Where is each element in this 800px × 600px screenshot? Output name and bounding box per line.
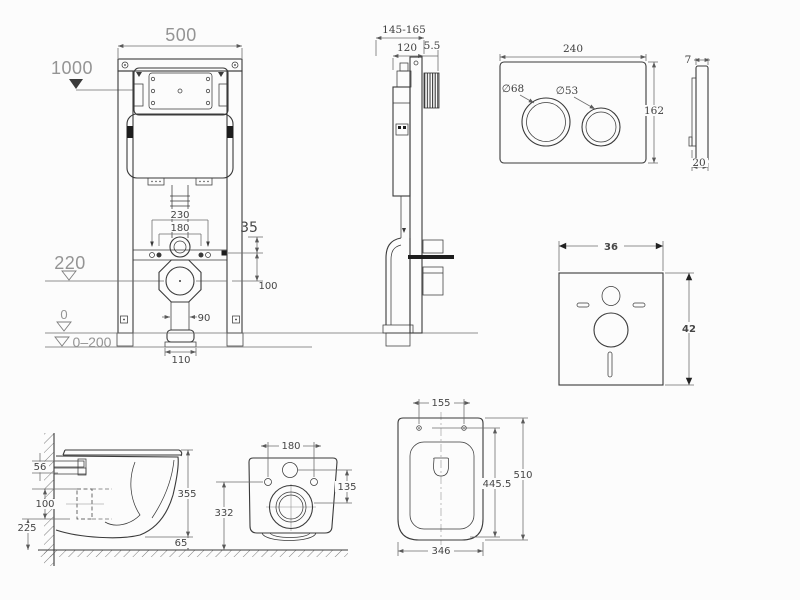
valve-cap [400, 63, 408, 71]
mount-hole [311, 479, 318, 486]
width-label: 346 [431, 546, 450, 557]
cistern-bottom-tabs [148, 178, 212, 185]
flush-plate [500, 62, 646, 163]
fixing-bolt [157, 253, 162, 258]
bolt-span-dim: 180 [159, 222, 201, 246]
pad-vertical-slot [608, 352, 612, 377]
bolt-span-label: 180 [170, 223, 189, 234]
flush-connector [54, 461, 84, 467]
level-marker-filled [69, 79, 83, 89]
foot-extension [386, 333, 410, 346]
outlet-flange [165, 342, 196, 347]
pipe-width-label: 90 [198, 313, 211, 324]
installation-frame-front-view: 500 1000 [45, 25, 478, 366]
toilet-rear-view: 180 135 332 [211, 440, 359, 550]
small-flush-button [582, 108, 620, 146]
cistern-side-clip [127, 126, 133, 138]
window-side-tab [134, 84, 143, 106]
trap-curve [105, 462, 140, 525]
sound-insulation-pad-view: 36 42 [559, 240, 698, 385]
cistern-fitting [396, 124, 408, 135]
leader-line [574, 97, 595, 109]
frame-right-foot [227, 333, 243, 346]
bolt-span-label: 155 [431, 398, 450, 409]
weld-nut [222, 251, 227, 256]
wall-section-hatch [424, 73, 439, 108]
technical-drawing-canvas: 500 1000 [0, 0, 800, 600]
wall-ref-height-label: 1000 [51, 58, 93, 78]
level-marker-open [55, 337, 69, 346]
concealed-cistern [127, 68, 233, 185]
frame-structure [117, 59, 243, 346]
offset-dims: 35 100 [228, 220, 278, 292]
support-bracket [408, 255, 454, 259]
big-button-dia-label: ∅68 [502, 83, 525, 95]
bolt-hole [206, 253, 211, 258]
screw-dot [124, 64, 126, 66]
pad-inlet-cutout [602, 287, 620, 306]
outlet-width-label: 110 [171, 355, 190, 366]
inner-depth-label: 445.5 [483, 479, 512, 490]
pad-height-label: 42 [682, 324, 696, 335]
frame-width-dim-label: 500 [165, 25, 197, 45]
drain-connector-stub [423, 267, 443, 295]
toilet-side-view: 56 100 225 355 65 [15, 450, 199, 550]
frame-left-foot [117, 333, 133, 346]
frame-left-rail [118, 71, 133, 333]
plate-height-label: 162 [644, 105, 664, 117]
center-dot [179, 280, 181, 282]
access-window-panel [149, 73, 212, 109]
toilet-top-view: 155 445.5 510 346 [398, 397, 536, 557]
flush-connector-stub [423, 240, 443, 253]
drain-opening [266, 484, 316, 531]
panel-screws [151, 77, 209, 104]
cistern-side-clip [227, 126, 233, 138]
toilet-side-body [54, 450, 182, 538]
plate-thickness-label: 7 [685, 54, 692, 66]
fill-valve [397, 71, 411, 87]
fixing-gap-label: 56 [34, 462, 47, 473]
drain-elbow-outer [386, 238, 401, 325]
adjust-mark [136, 72, 142, 77]
bowl-bottom-arc [262, 533, 316, 541]
panel-center-hole [178, 89, 182, 93]
floor-zero-label: 0 [60, 307, 67, 322]
pipe-bend-inner [174, 241, 186, 253]
plate-width-label: 240 [563, 43, 583, 55]
pipe-bend [170, 237, 190, 257]
flow-arrow [402, 228, 406, 233]
toilet-top-dims: 155 445.5 510 346 [398, 397, 536, 557]
adjust-mark [218, 72, 224, 77]
seat-edge [63, 450, 182, 456]
drain-connector [54, 468, 86, 474]
fixing-bolt [199, 253, 204, 258]
inlet-to-drain-label: 135 [337, 482, 356, 493]
insulation-pad [559, 273, 663, 385]
small-button-inner-ring [586, 112, 616, 142]
toilet-top-body [398, 418, 483, 540]
bowl-inner-front [152, 460, 174, 518]
leader-line [520, 95, 534, 103]
pipe-span-label: 230 [170, 210, 189, 221]
pad-width-label: 36 [604, 242, 618, 253]
drain-outlet: 90 110 [162, 302, 210, 366]
small-button-dia-label: ∅53 [556, 85, 579, 97]
plate-lip [692, 78, 696, 146]
screw-dot [234, 64, 236, 66]
hole-dot [235, 319, 237, 321]
body-height-label: 355 [177, 489, 196, 500]
ground-hatch [38, 551, 348, 558]
bolt-span-label: 180 [281, 441, 300, 452]
body-depth-label: 120 [397, 42, 417, 54]
outlet-cap [167, 330, 194, 342]
toilet-installation-drawing: 500 1000 [0, 0, 800, 600]
fixing-bolt-rail [133, 250, 227, 260]
installation-frame-side-view: 145-165 120 5.5 [376, 24, 454, 346]
mount-hole [265, 479, 272, 486]
flush-plate-front-view: 240 162 ∅68 ∅53 [500, 43, 665, 163]
flush-inlet [283, 463, 298, 478]
flush-plate-side-view: 7 20 [685, 54, 710, 171]
bowl-rim [410, 442, 474, 529]
flush-pipe [170, 185, 190, 257]
floor-clearance-label: 65 [175, 538, 188, 549]
bolt-hole [150, 253, 155, 258]
offset-label: 35 [240, 220, 258, 236]
floor-adjust-label: 0–200 [73, 334, 112, 350]
drain-height-label: 332 [214, 508, 233, 519]
ground-line [38, 550, 348, 557]
drain-elbow-inner [391, 245, 401, 325]
drain-offset-label: 100 [35, 499, 54, 510]
level-marker-open [57, 322, 71, 331]
frame-rail-side [410, 57, 422, 333]
pad-slot [633, 303, 645, 307]
depth-range-label: 145-165 [382, 24, 426, 36]
cistern-body [127, 114, 233, 178]
pad-slot [577, 303, 589, 307]
frame-side-structure [383, 57, 454, 346]
plate-clip [689, 137, 692, 146]
drain-socket [159, 260, 201, 302]
frame-foot-side [383, 325, 413, 333]
big-button-inner-ring [527, 103, 566, 142]
access-window-frame [134, 68, 228, 115]
total-depth-label: 510 [513, 470, 532, 481]
drain-height-label: 220 [54, 253, 86, 273]
plate-profile [696, 66, 708, 161]
frame-right-rail [227, 71, 242, 333]
rail-hole [414, 61, 418, 65]
big-flush-button [522, 98, 570, 146]
bolt-to-drain-label: 100 [258, 281, 277, 292]
bowl-bottom-arc-inner [270, 533, 310, 538]
plate-depth-label: 20 [692, 157, 705, 169]
pad-drain-cutout [594, 313, 628, 347]
hole-dot [123, 319, 125, 321]
drain-to-floor-label: 225 [17, 523, 36, 534]
